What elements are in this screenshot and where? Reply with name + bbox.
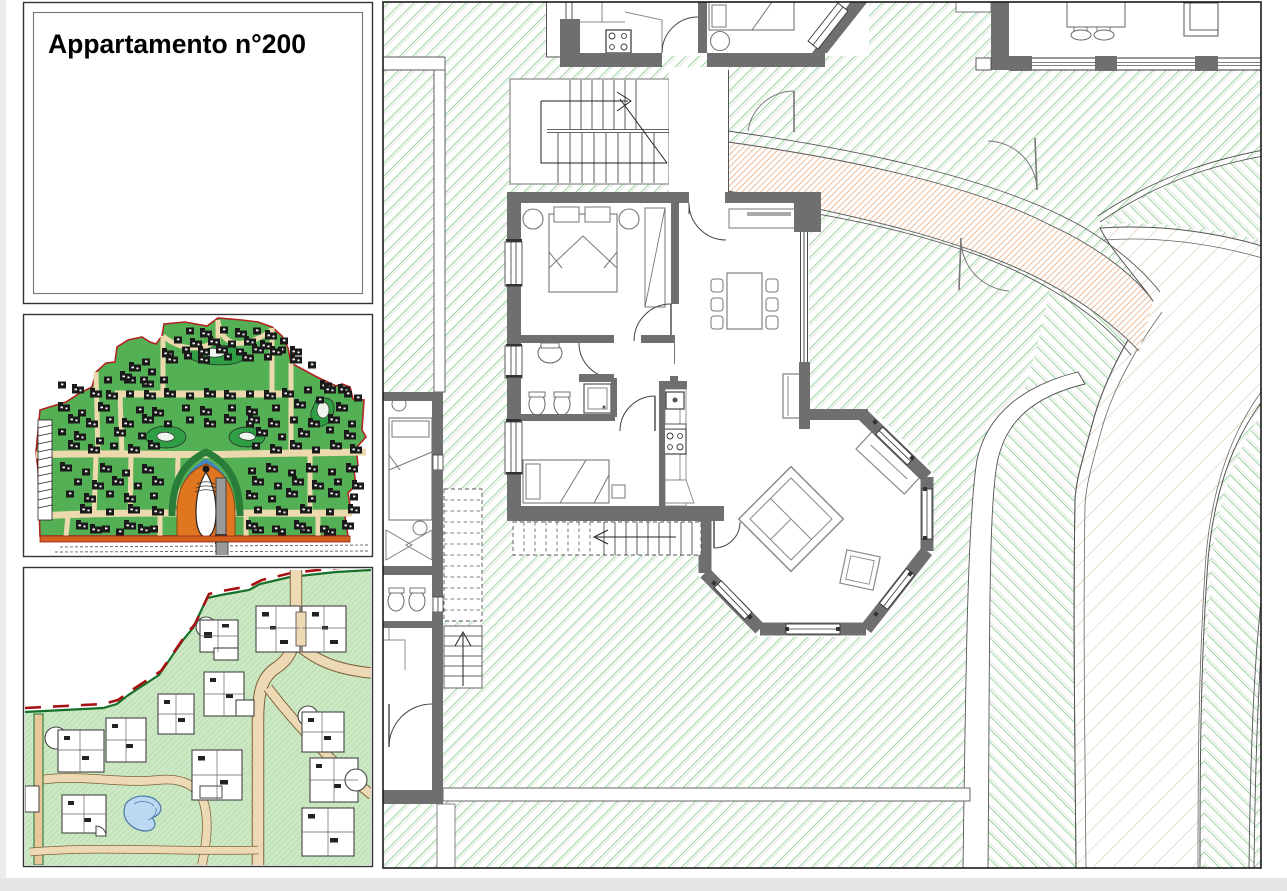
svg-text:Appartamento n°200: Appartamento n°200 bbox=[48, 29, 306, 59]
